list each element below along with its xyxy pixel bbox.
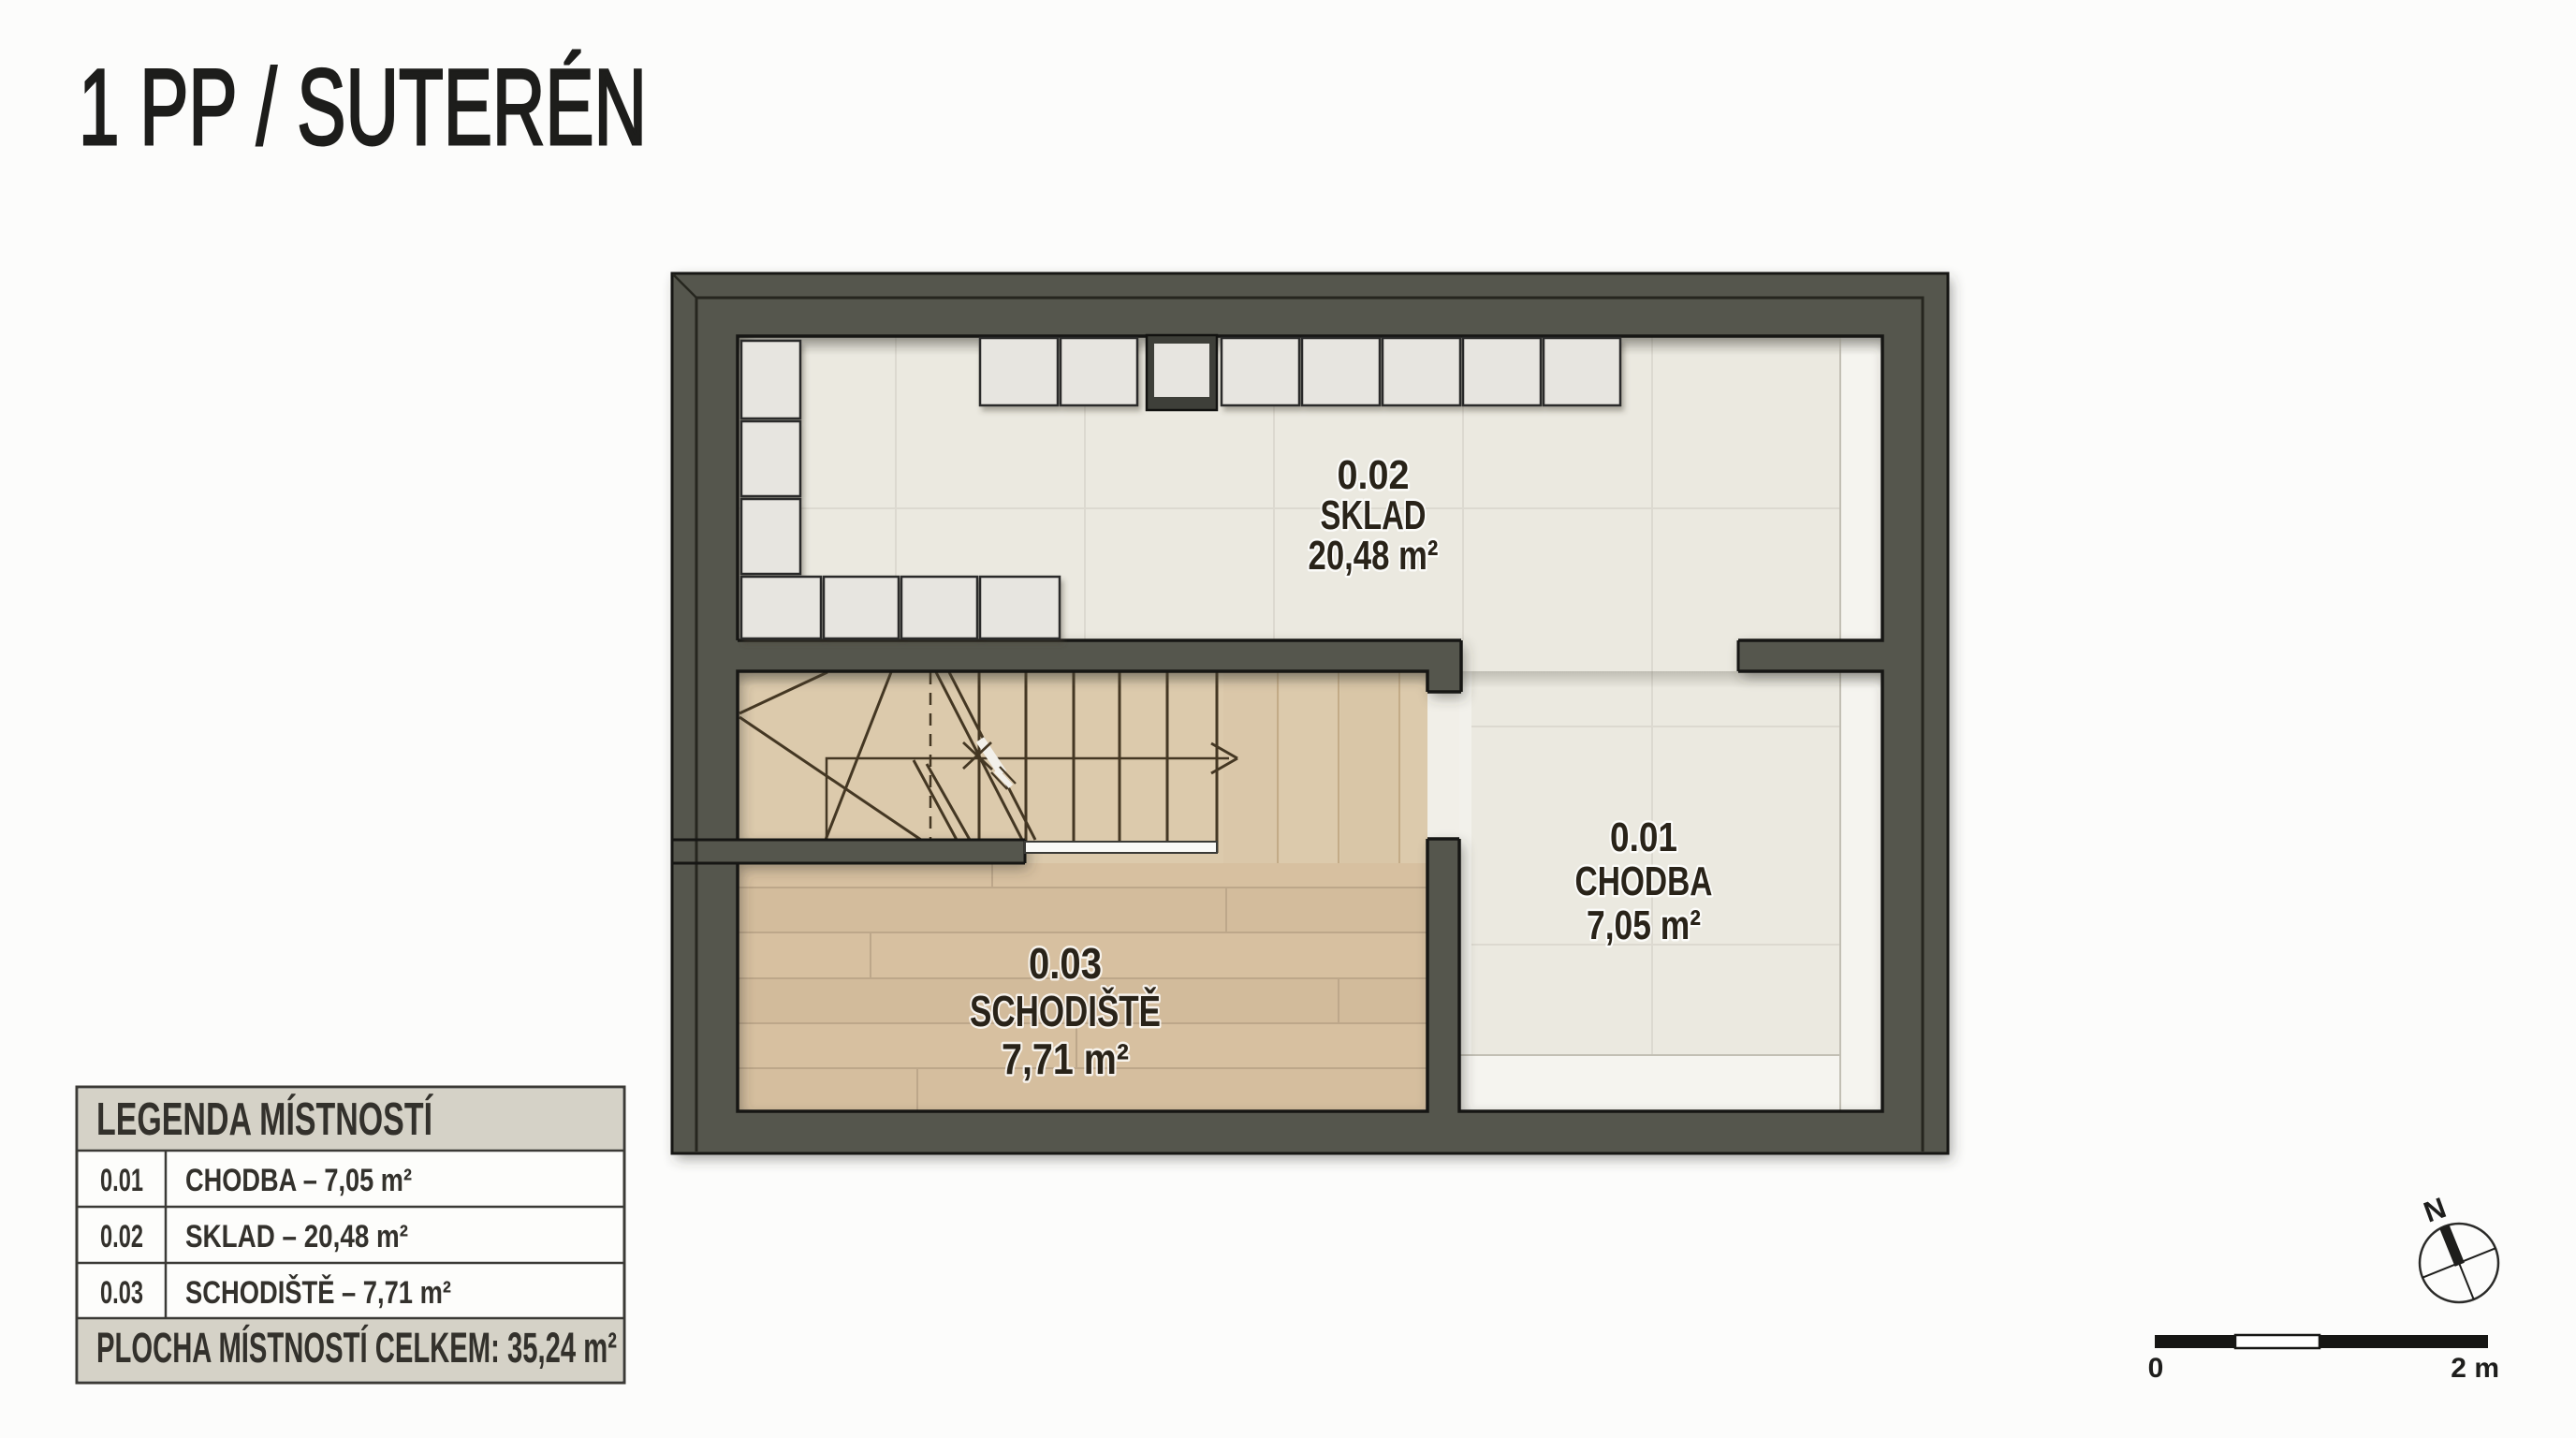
svg-text:1 PP / SUTERÉN: 1 PP / SUTERÉN — [79, 48, 647, 168]
svg-text:0: 0 — [2148, 1353, 2164, 1384]
svg-text:N: N — [2420, 1191, 2451, 1229]
svg-text:0.02: 0.02 — [1338, 452, 1410, 498]
svg-text:CHODBA: CHODBA — [1575, 858, 1713, 904]
svg-text:SCHODIŠTĚ – 7,71 m²: SCHODIŠTĚ – 7,71 m² — [185, 1274, 451, 1311]
svg-text:0.01: 0.01 — [1610, 814, 1677, 860]
svg-text:0.01: 0.01 — [100, 1163, 143, 1198]
svg-text:20,48 m²: 20,48 m² — [1309, 533, 1439, 579]
svg-text:SKLAD: SKLAD — [1321, 492, 1427, 538]
svg-text:7,05 m²: 7,05 m² — [1587, 902, 1701, 948]
svg-text:7,71 m²: 7,71 m² — [1002, 1034, 1129, 1083]
svg-text:0.03: 0.03 — [100, 1275, 143, 1311]
svg-text:0.03: 0.03 — [1029, 939, 1102, 988]
svg-text:LEGENDA MÍSTNOSTÍ: LEGENDA MÍSTNOSTÍ — [96, 1094, 433, 1145]
svg-text:PLOCHA MÍSTNOSTÍ CELKEM: 35,24: PLOCHA MÍSTNOSTÍ CELKEM: 35,24 m² — [96, 1324, 617, 1372]
svg-text:CHODBA – 7,05 m²: CHODBA – 7,05 m² — [185, 1163, 412, 1198]
svg-text:SCHODIŠTĚ: SCHODIŠTĚ — [970, 987, 1161, 1035]
svg-text:SKLAD – 20,48 m²: SKLAD – 20,48 m² — [185, 1219, 408, 1255]
svg-text:2 m: 2 m — [2451, 1353, 2499, 1384]
svg-text:0.02: 0.02 — [100, 1219, 143, 1255]
